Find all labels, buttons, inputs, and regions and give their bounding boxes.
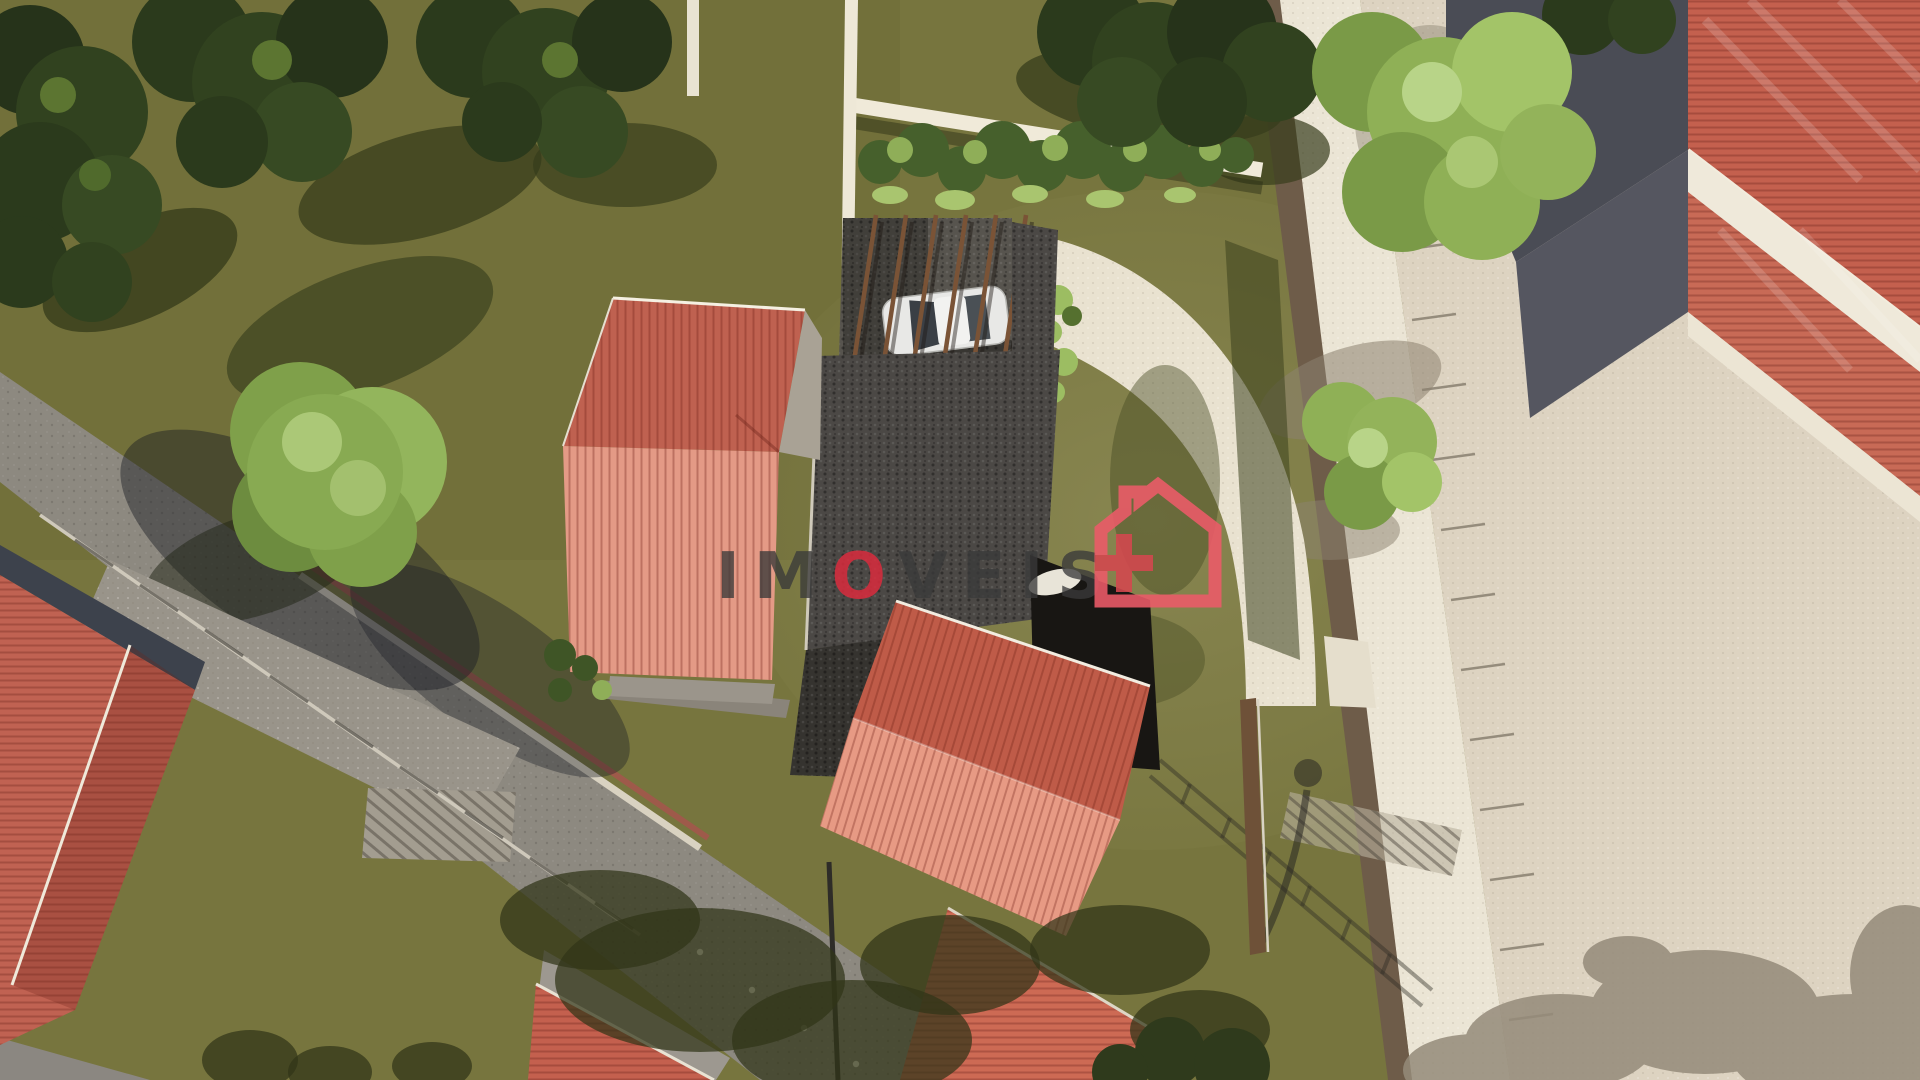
watermark-letter-o: O bbox=[832, 540, 899, 614]
watermark-part3: VEIS bbox=[898, 540, 1117, 614]
lamp-head-shadow bbox=[1294, 759, 1322, 787]
render-canvas: IMOVEIS bbox=[0, 0, 1920, 1080]
gate bbox=[1324, 636, 1376, 708]
white-wall-short bbox=[687, 0, 699, 96]
aerial-render: IMOVEIS bbox=[0, 0, 1920, 1080]
watermark-text: IMOVEIS bbox=[716, 540, 1117, 614]
watermark-part1: IM bbox=[716, 540, 832, 614]
